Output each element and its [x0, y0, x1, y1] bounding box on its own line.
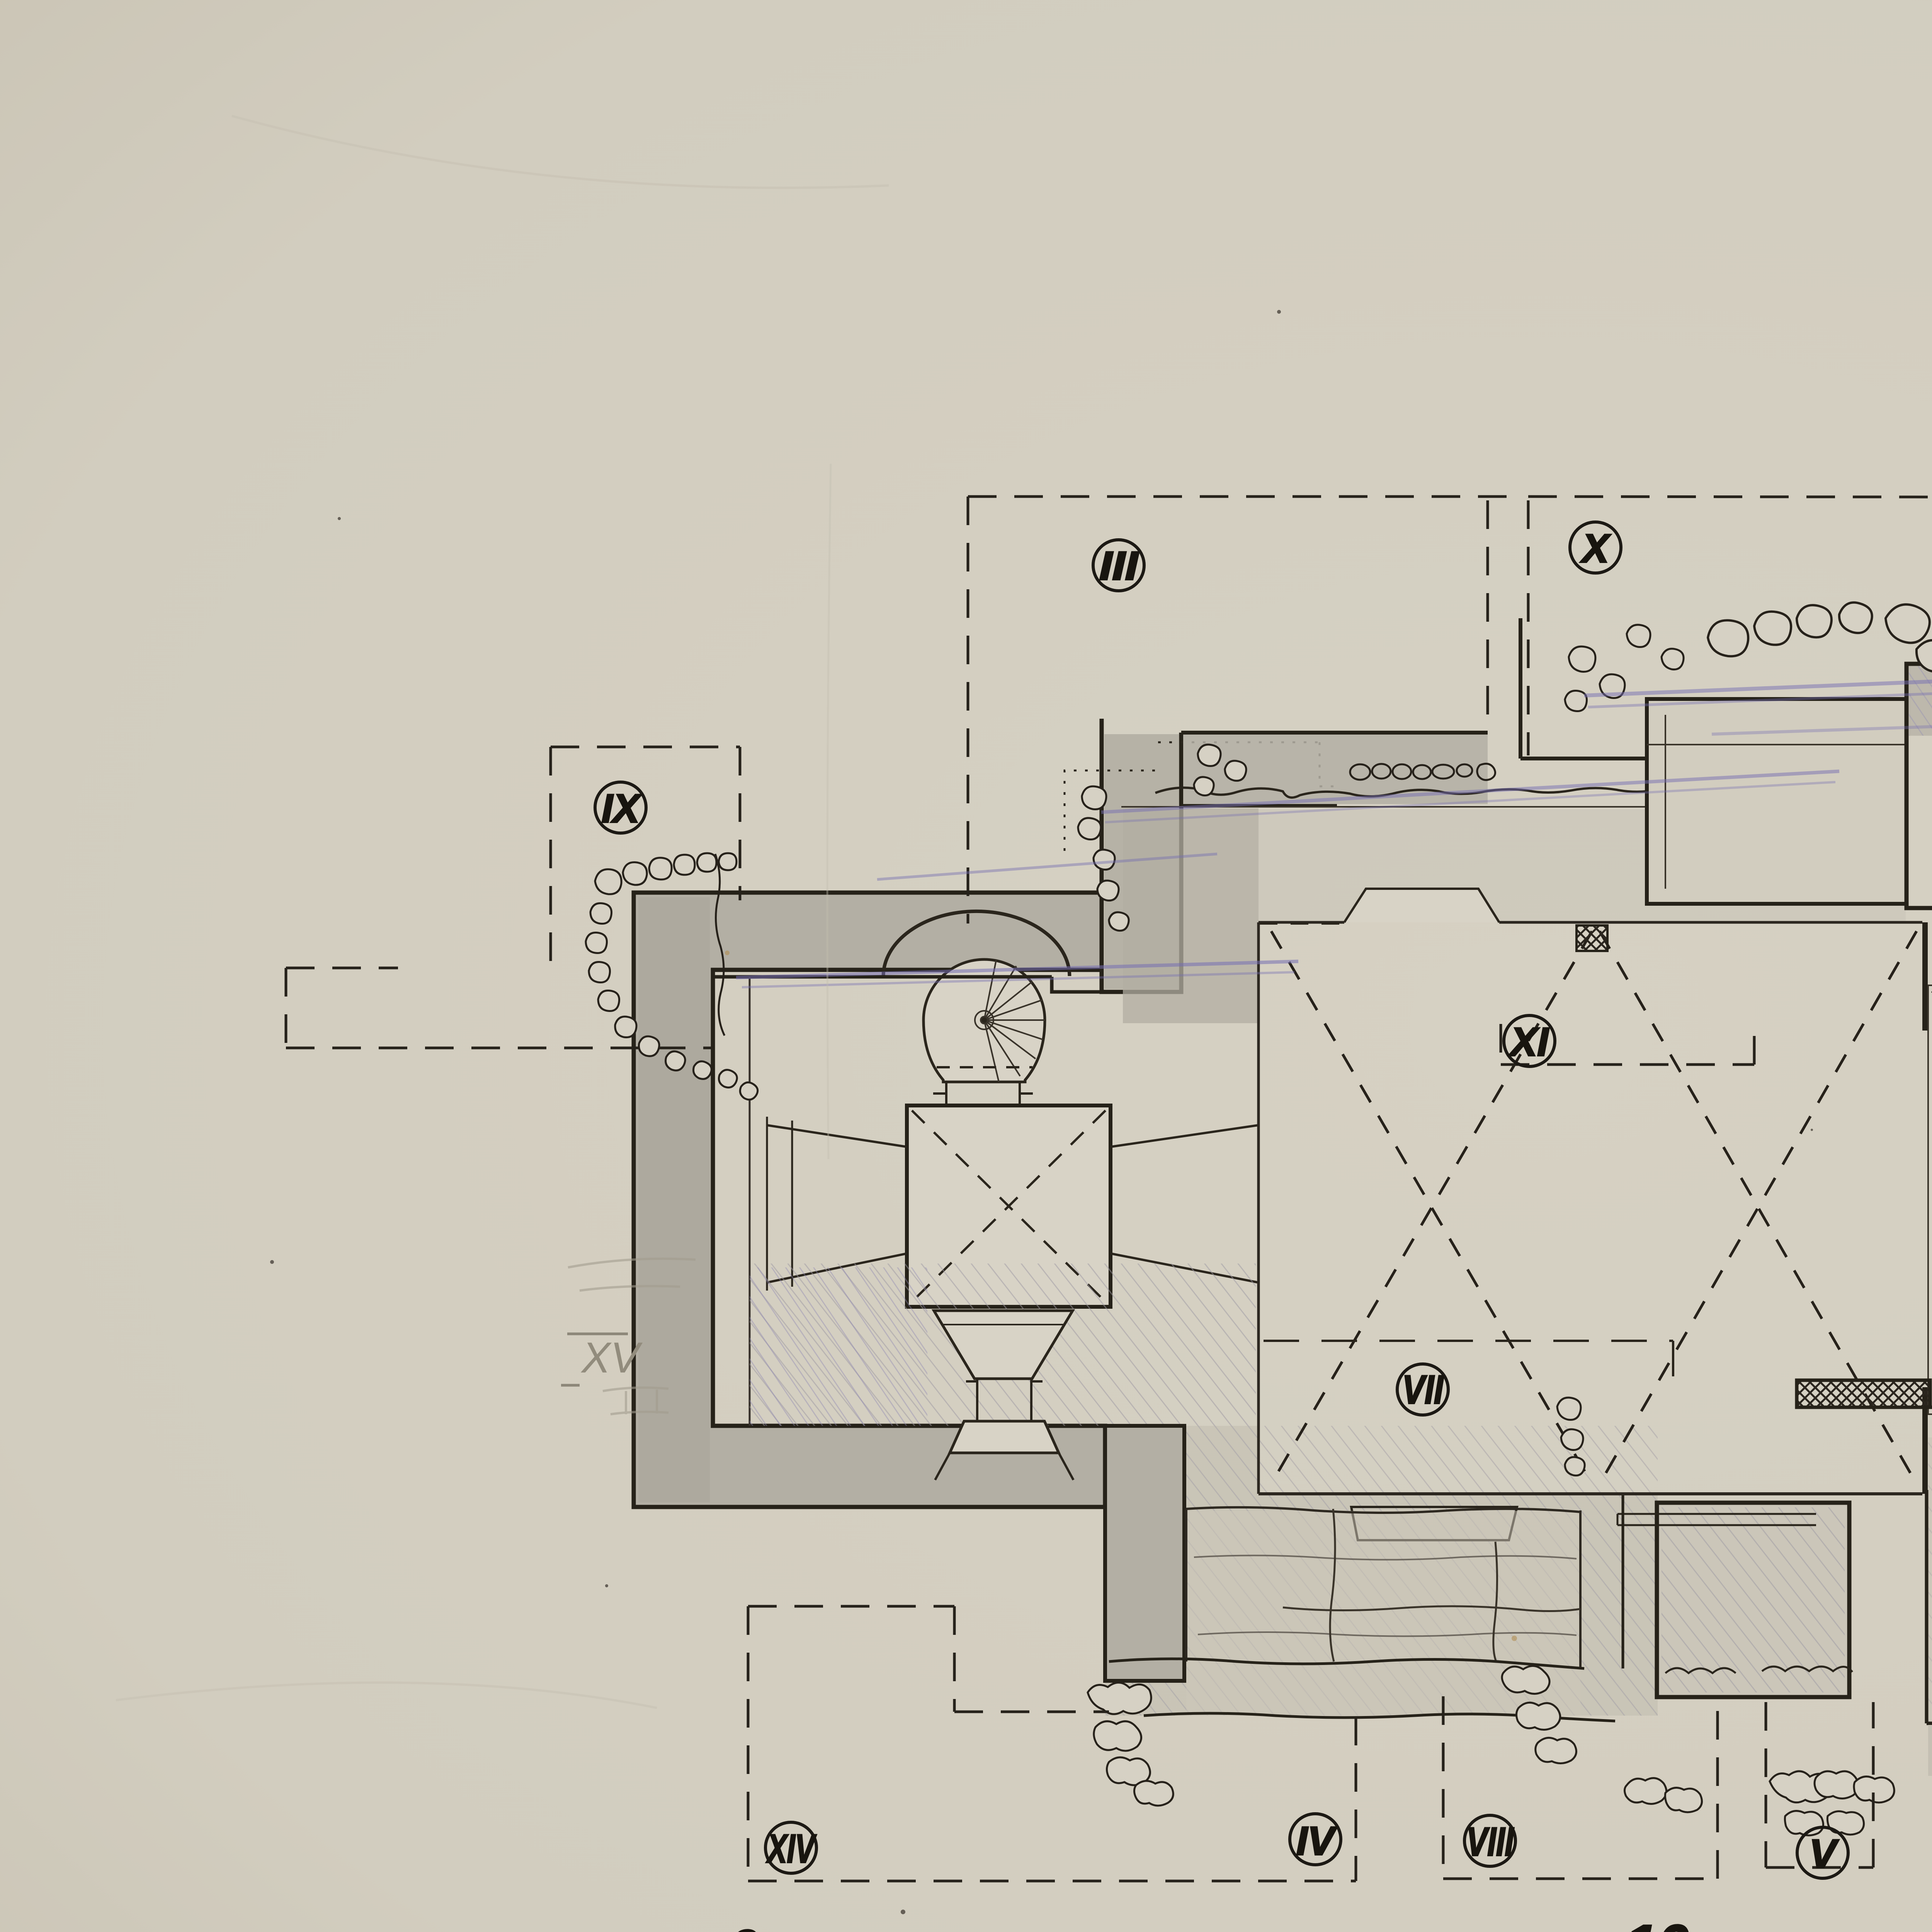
- svg-text:VIII: VIII: [1466, 1820, 1514, 1864]
- svg-text:10: 10: [1625, 1913, 1689, 1932]
- svg-text:VII: VII: [1402, 1367, 1444, 1412]
- svg-text:IX: IX: [602, 786, 642, 831]
- svg-text:0: 0: [727, 1918, 759, 1932]
- svg-text:X: X: [1580, 526, 1611, 571]
- svg-text:V: V: [1809, 1832, 1839, 1876]
- svg-text:XI: XI: [1509, 1020, 1549, 1065]
- svg-text:III: III: [1099, 544, 1139, 588]
- svg-text:XV: XV: [580, 1333, 643, 1382]
- svg-text:IV: IV: [1296, 1819, 1337, 1864]
- svg-text:XIV: XIV: [766, 1827, 816, 1871]
